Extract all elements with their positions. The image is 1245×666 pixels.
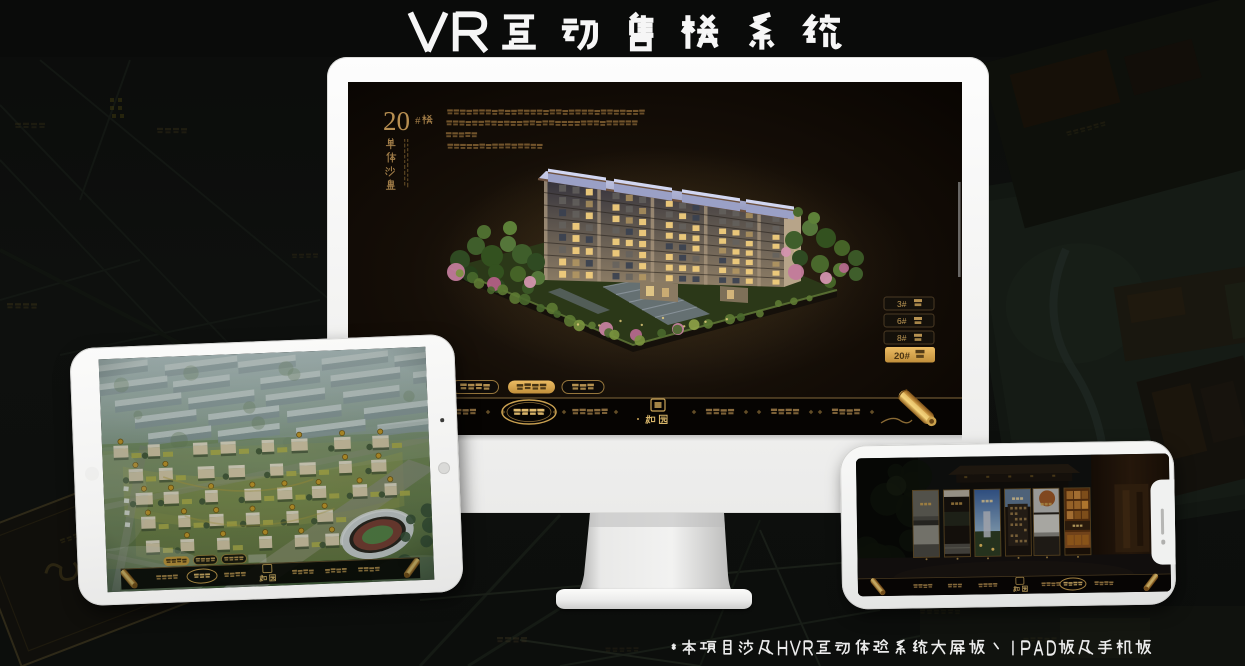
svg-text:8#: 8#	[897, 333, 907, 343]
svg-text:6#: 6#	[897, 316, 907, 326]
svg-text:3#: 3#	[897, 299, 907, 309]
svg-text:20: 20	[383, 106, 410, 136]
svg-text:20#: 20#	[894, 351, 911, 362]
svg-text:#: #	[415, 115, 421, 127]
